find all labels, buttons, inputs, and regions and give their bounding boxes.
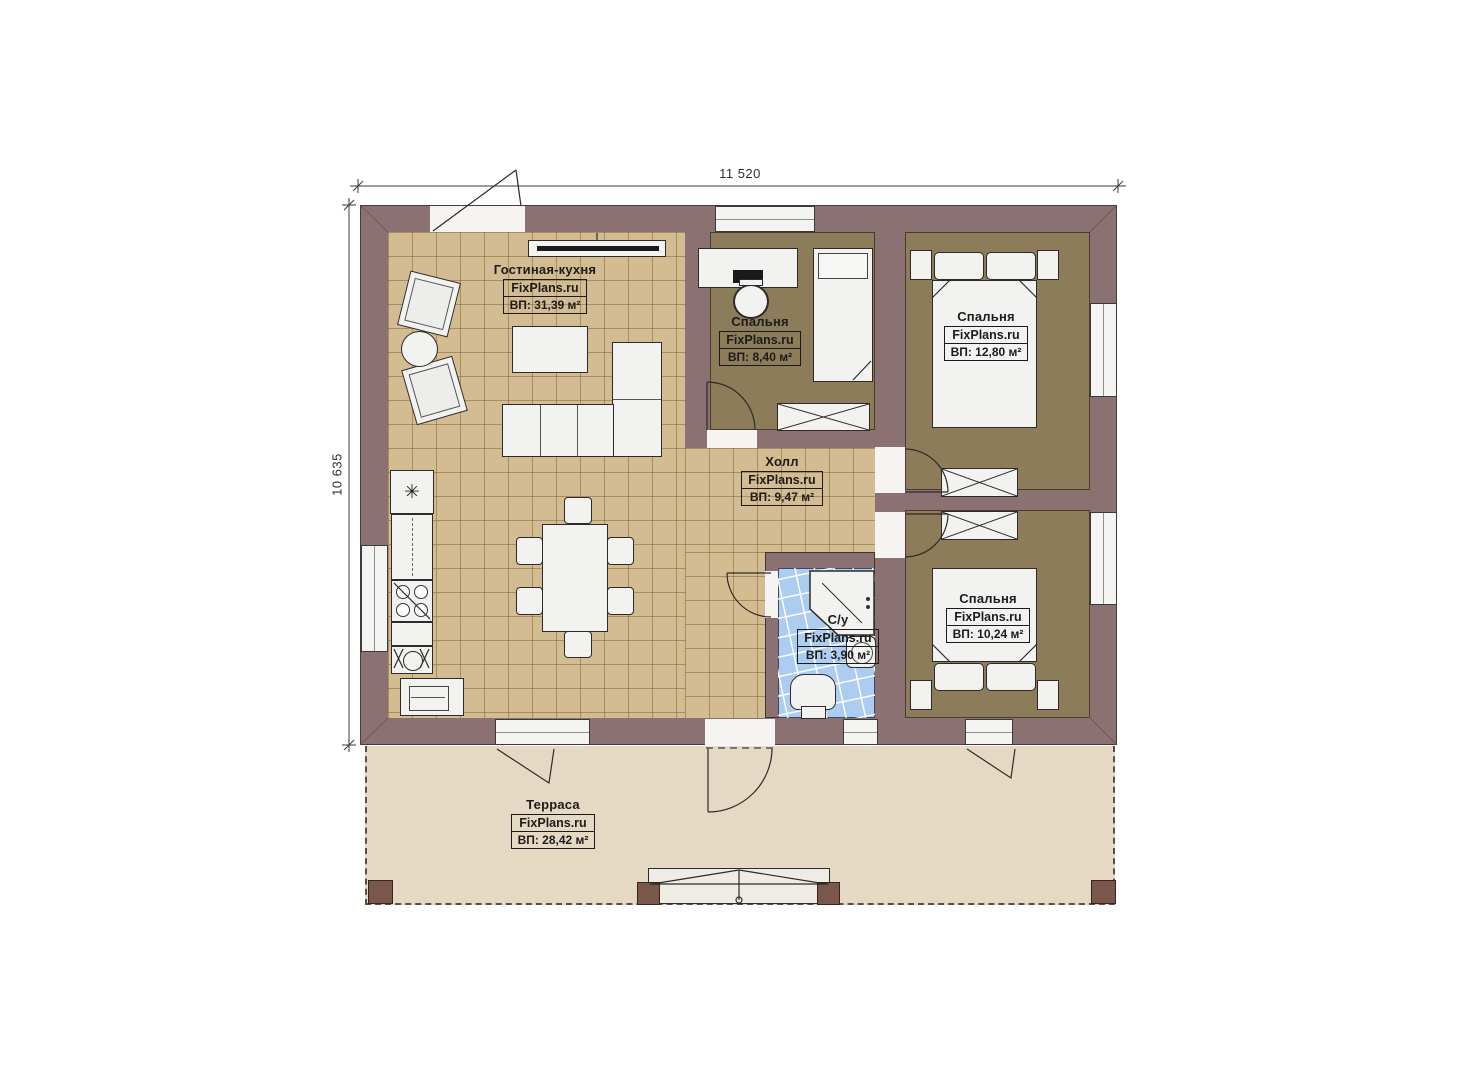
nightstand <box>910 680 932 710</box>
brand-watermark: FixPlans.ru <box>947 609 1030 626</box>
tv-screen <box>537 246 659 251</box>
bedroom1-door-opening <box>707 430 757 448</box>
brand-watermark: FixPlans.ru <box>945 327 1028 344</box>
brand-watermark: FixPlans.ru <box>720 332 799 349</box>
living-bottom-window <box>495 719 590 745</box>
oven <box>400 678 464 716</box>
room-area: ВП: 28,42 м² <box>512 832 595 848</box>
side-table <box>401 331 438 367</box>
entrance-door-opening <box>430 206 525 232</box>
bedroom2-right-window <box>1090 303 1117 397</box>
dining-table <box>542 524 608 632</box>
room-area: ВП: 9,47 м² <box>742 489 821 505</box>
terrace-post <box>368 880 393 904</box>
hall-floor-lower <box>685 552 765 718</box>
fridge-icon: ✳ <box>390 470 434 514</box>
room-tag-bathroom: С/у FixPlans.ru ВП: 3,90 м² <box>794 612 882 664</box>
brand-watermark: FixPlans.ru <box>798 630 877 647</box>
sink-bowl <box>403 651 423 671</box>
kitchen-sink <box>391 646 433 674</box>
office-chair-back <box>739 279 763 286</box>
dining-chair <box>564 497 592 524</box>
dimension-width-label: 11 520 <box>660 166 820 181</box>
room-info-box: FixPlans.ru ВП: 3,90 м² <box>797 629 878 664</box>
sofa-cushion-line <box>613 399 661 400</box>
toilet-bowl <box>790 674 836 710</box>
bed-pillow <box>934 663 984 691</box>
room-info-box: FixPlans.ru ВП: 12,80 м² <box>944 326 1029 361</box>
terrace-post <box>1091 880 1116 904</box>
nightstand <box>910 250 932 280</box>
brand-watermark: FixPlans.ru <box>504 280 587 297</box>
brand-watermark: FixPlans.ru <box>742 472 821 489</box>
room-info-box: FixPlans.ru ВП: 28,42 м² <box>511 814 596 849</box>
bed-pillow <box>986 663 1036 691</box>
bedroom2-door-opening <box>875 447 905 493</box>
room-tag-bedroom2: Спальня FixPlans.ru ВП: 12,80 м² <box>936 309 1036 361</box>
stove-cooktop <box>391 580 433 622</box>
room-tag-terrace: Терраса FixPlans.ru ВП: 28,42 м² <box>498 797 608 849</box>
wardrobe <box>941 511 1018 540</box>
bed-pillow <box>818 253 868 279</box>
dining-chair <box>516 537 543 565</box>
armchair-cushion <box>404 278 453 330</box>
bed-pillow <box>934 252 984 280</box>
burner-icon <box>396 603 410 617</box>
counter-centerline <box>412 518 413 576</box>
room-area: ВП: 12,80 м² <box>945 344 1028 360</box>
toilet-tank <box>801 706 826 719</box>
room-name: Спальня <box>957 309 1015 324</box>
terrace-door-opening <box>705 719 775 745</box>
nightstand <box>1037 250 1059 280</box>
room-name: Гостиная-кухня <box>494 262 596 277</box>
burner-icon <box>396 585 410 599</box>
sofa-cushion-line <box>577 405 578 456</box>
room-area: ВП: 31,39 м² <box>504 297 587 313</box>
bed-pillow <box>986 252 1036 280</box>
kitchen-counter-small <box>391 622 433 646</box>
bedroom3-bottom-window <box>965 719 1013 745</box>
bathroom-bottom-window <box>843 719 878 745</box>
coffee-table <box>512 326 588 373</box>
floor-plan-canvas: 11 520 10 635 ✳ <box>0 0 1473 1080</box>
sofa-seat-section <box>502 404 614 457</box>
wardrobe <box>941 468 1018 497</box>
room-info-box: FixPlans.ru ВП: 31,39 м² <box>503 279 588 314</box>
room-area: ВП: 3,90 м² <box>798 647 877 663</box>
dimension-height-label: 10 635 <box>330 420 345 530</box>
sofa-back-section <box>612 342 662 457</box>
dining-chair <box>564 631 592 658</box>
terrace-post <box>637 882 660 905</box>
room-tag-living-kitchen: Гостиная-кухня FixPlans.ru ВП: 31,39 м² <box>478 262 612 314</box>
room-info-box: FixPlans.ru ВП: 10,24 м² <box>946 608 1031 643</box>
burner-icon <box>414 585 428 599</box>
kitchen-counter <box>391 514 433 580</box>
armchair-cushion <box>409 363 461 418</box>
room-info-box: FixPlans.ru ВП: 8,40 м² <box>719 331 800 366</box>
room-name: Холл <box>765 454 798 469</box>
wardrobe <box>777 403 870 431</box>
room-name: Терраса <box>526 797 580 812</box>
dining-chair <box>516 587 543 615</box>
terrace-steps <box>648 868 830 904</box>
room-name: Спальня <box>731 314 789 329</box>
oven-door <box>409 686 449 711</box>
sofa-cushion-line <box>540 405 541 456</box>
room-tag-bedroom3: Спальня FixPlans.ru ВП: 10,24 м² <box>938 591 1038 643</box>
bedroom1-top-window <box>715 206 815 232</box>
room-name: Спальня <box>959 591 1017 606</box>
tv-bench <box>528 240 666 257</box>
bedroom3-right-window <box>1090 512 1117 605</box>
nightstand <box>1037 680 1059 710</box>
room-area: ВП: 10,24 м² <box>947 626 1030 642</box>
living-left-window <box>361 545 388 652</box>
single-bed <box>813 248 873 382</box>
room-info-box: FixPlans.ru ВП: 9,47 м² <box>741 471 822 506</box>
room-name: С/у <box>828 612 849 627</box>
oven-line <box>411 697 445 698</box>
brand-watermark: FixPlans.ru <box>512 815 595 832</box>
room-tag-bedroom1: Спальня FixPlans.ru ВП: 8,40 м² <box>714 314 806 366</box>
bathroom-door-opening <box>765 571 778 618</box>
burner-icon <box>414 603 428 617</box>
bedroom3-door-opening <box>875 512 905 558</box>
room-tag-hall: Холл FixPlans.ru ВП: 9,47 м² <box>732 454 832 506</box>
dining-chair <box>607 587 634 615</box>
room-area: ВП: 8,40 м² <box>720 349 799 365</box>
dining-chair <box>607 537 634 565</box>
terrace-post <box>817 882 840 905</box>
